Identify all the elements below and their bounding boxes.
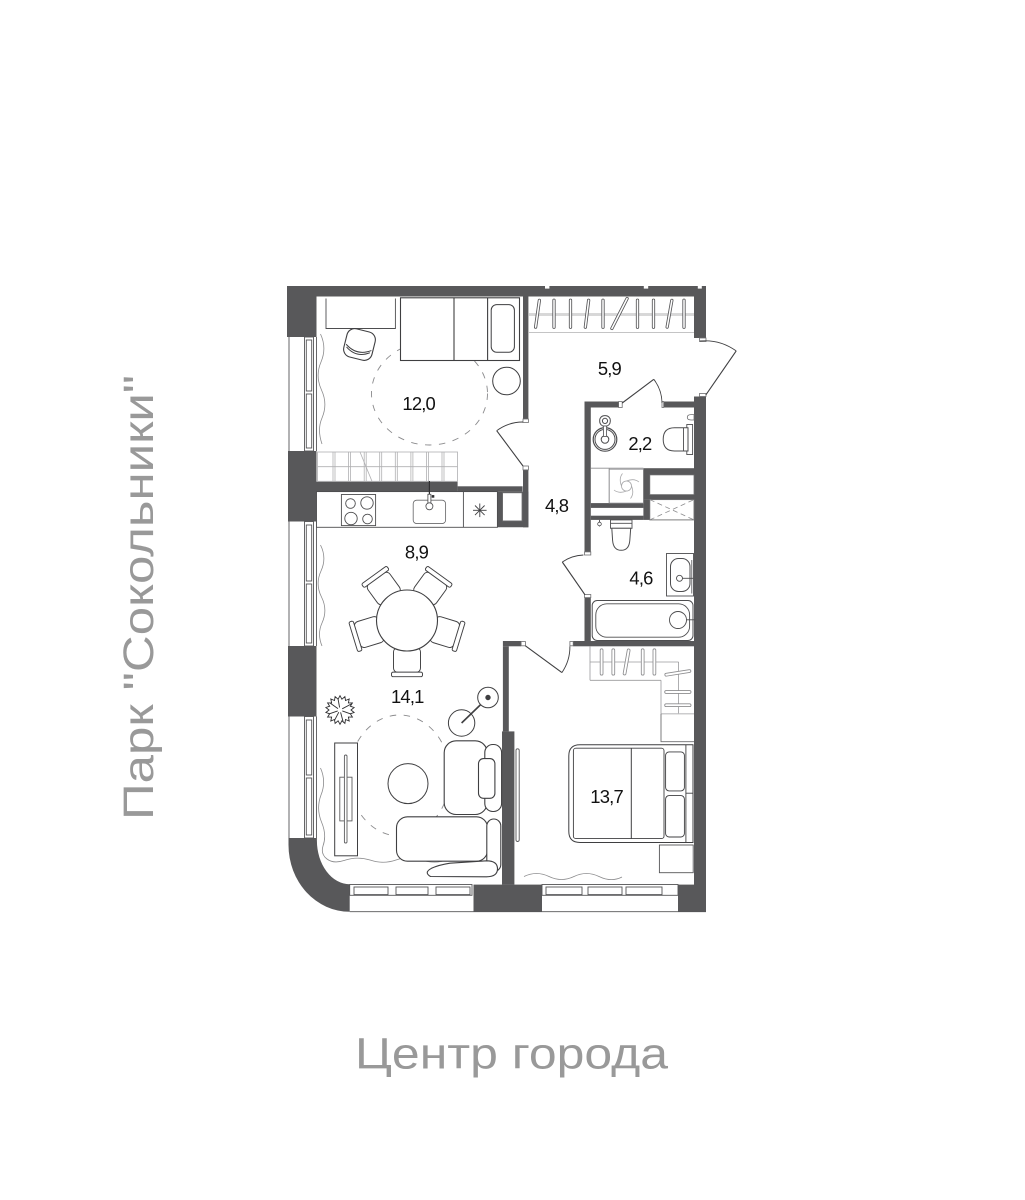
- svg-text:2,2: 2,2: [628, 433, 652, 454]
- svg-text:Парк "Сокольники": Парк "Сокольники": [115, 375, 163, 820]
- svg-text:8,9: 8,9: [405, 542, 429, 563]
- svg-text:5,9: 5,9: [598, 358, 622, 379]
- svg-text:Центр города: Центр города: [355, 1030, 669, 1079]
- svg-text:13,7: 13,7: [590, 786, 623, 807]
- svg-text:12,0: 12,0: [402, 393, 435, 414]
- svg-text:4,8: 4,8: [545, 495, 569, 516]
- svg-text:14,1: 14,1: [391, 686, 424, 707]
- svg-text:4,6: 4,6: [629, 568, 653, 589]
